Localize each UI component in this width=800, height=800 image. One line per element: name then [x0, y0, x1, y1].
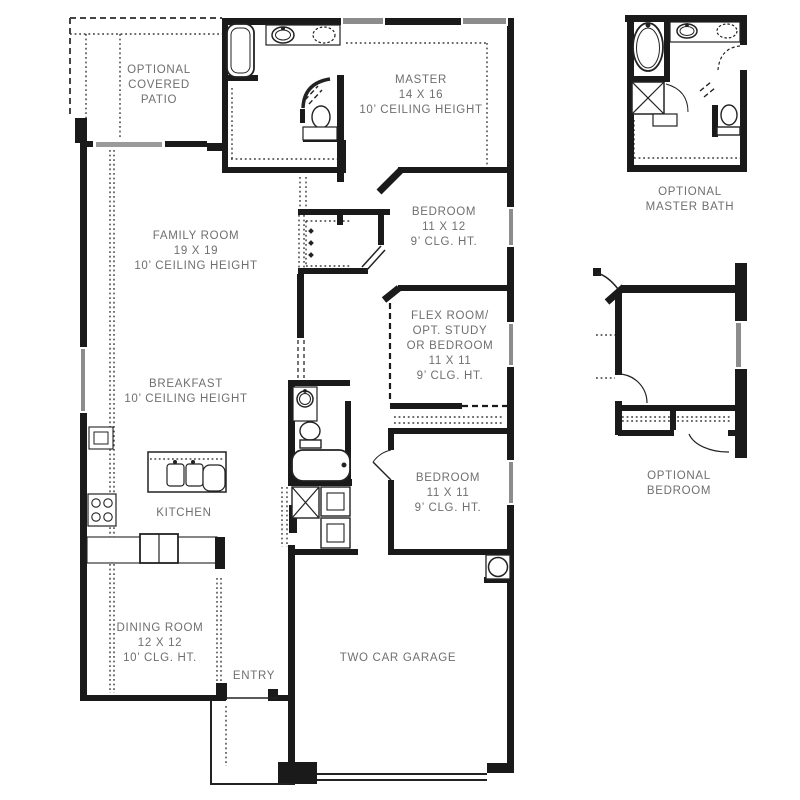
sink-basin [167, 464, 184, 486]
window-bedroom2 [504, 207, 516, 247]
bath2-tub-icon [292, 450, 350, 481]
opt-bedroom-door-arc [618, 374, 647, 403]
floor-plan-drawing [0, 0, 800, 800]
garden-tub-icon [633, 23, 663, 71]
opt-bath-entry-arc [718, 46, 740, 70]
window-breakfast [78, 347, 89, 413]
window-flex [504, 322, 516, 367]
kitchen-counter [89, 427, 113, 449]
stove-icon [88, 494, 116, 526]
mud-nook-hooks [308, 228, 314, 258]
counter-end-wall [215, 537, 225, 569]
room-label-optional-bedroom: OPTIONAL BEDROOM [647, 469, 711, 499]
shower-icon [632, 82, 664, 114]
opt-bath-bench [653, 114, 677, 126]
bath2-vanity [293, 387, 317, 421]
opt-bath-toilet-icon [717, 105, 740, 135]
room-label-bedroom3: BEDROOM 11 X 11 9’ CLG. HT. [415, 471, 482, 516]
water-heater-icon [486, 555, 510, 579]
room-label-dining: DINING ROOM 12 X 12 10’ CLG. HT. [117, 621, 204, 666]
floor-plan: OPTIONAL COVERED PATIO MASTER 14 X 16 10… [0, 0, 800, 800]
bedroom2-door-leaf [362, 246, 385, 271]
room-label-entry: ENTRY [233, 669, 275, 684]
cabinet-icon [321, 518, 350, 548]
sink-basin [186, 464, 203, 486]
opt-bedroom-closet-door-arc [689, 434, 729, 452]
window-bedroom3 [504, 460, 516, 505]
room-label-garage: TWO CAR GARAGE [340, 651, 457, 666]
stool [203, 465, 225, 491]
washer-icon [292, 487, 319, 518]
room-label-breakfast: BREAKFAST 10’ CEILING HEIGHT [124, 377, 247, 407]
window-opt-bedroom [732, 321, 748, 369]
opt-bath-shower-door-arc [666, 84, 688, 112]
bath2-toilet-icon [300, 422, 321, 448]
window-top-master-1 [341, 16, 385, 26]
dryer-icon [321, 487, 350, 516]
window-top-master-2 [461, 16, 508, 26]
optional-sink-icon [313, 27, 335, 43]
kitchen-island [148, 452, 226, 492]
opt-bath-vanity [670, 22, 740, 42]
optional-sink-icon [717, 24, 737, 38]
room-label-patio: OPTIONAL COVERED PATIO [127, 63, 191, 108]
bedroom3-door [373, 450, 391, 480]
master-vanity [266, 25, 340, 45]
room-label-family: FAMILY ROOM 19 X 19 10’ CEILING HEIGHT [134, 229, 257, 274]
room-label-master: MASTER 14 X 16 10’ CEILING HEIGHT [359, 73, 482, 118]
sliding-patio-door [93, 139, 165, 149]
room-label-kitchen: KITCHEN [156, 506, 211, 521]
room-label-bedroom2: BEDROOM 11 X 12 9’ CLG. HT. [411, 205, 478, 250]
opt-bath-toilet-door [700, 82, 715, 97]
refrigerator-icon [140, 534, 178, 563]
closet-bench [303, 127, 337, 140]
room-label-flex: FLEX ROOM/ OPT. STUDY OR BEDROOM 11 X 11… [407, 309, 494, 384]
master-bathtub-icon [227, 24, 254, 77]
garage-door [317, 774, 487, 780]
room-label-optional-master-bath: OPTIONAL MASTER BATH [646, 185, 735, 215]
master-toilet-curved-wall [303, 79, 330, 108]
